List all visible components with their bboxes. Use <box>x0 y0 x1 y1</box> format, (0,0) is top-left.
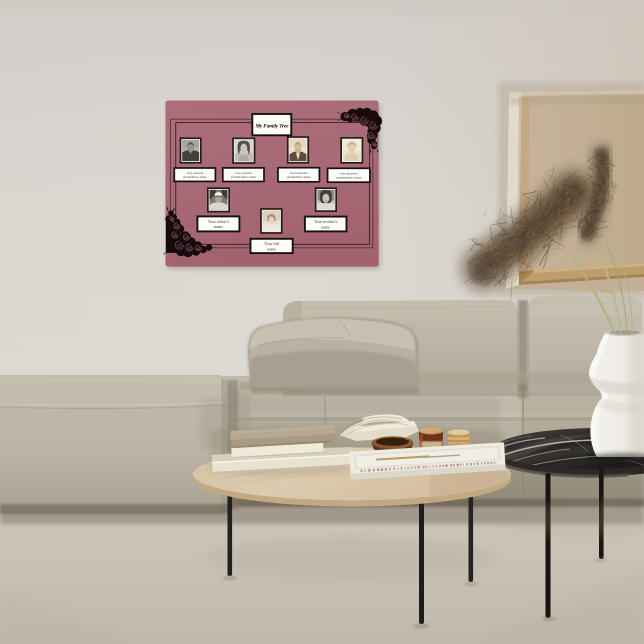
svg-text:name: name <box>321 224 330 229</box>
svg-text:grandfather's name: grandfather's name <box>183 175 207 179</box>
svg-text:name: name <box>267 246 276 251</box>
svg-text:My Family Tree: My Family Tree <box>254 124 289 130</box>
svg-text:grandfather's name: grandfather's name <box>287 175 311 179</box>
svg-text:name: name <box>214 224 223 229</box>
svg-text:grandmother's name: grandmother's name <box>336 175 362 179</box>
svg-text:grandmother's name: grandmother's name <box>231 175 257 179</box>
